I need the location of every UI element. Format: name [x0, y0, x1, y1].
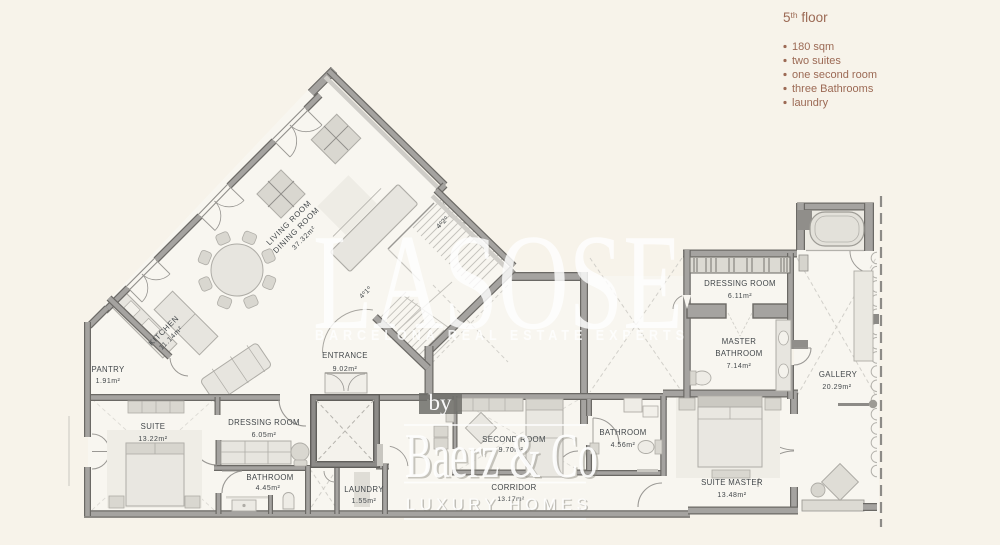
svg-text:LAUNDRY: LAUNDRY: [344, 485, 384, 494]
svg-text:180 sqm: 180 sqm: [792, 41, 834, 53]
svg-text:SUITE: SUITE: [141, 422, 166, 431]
svg-text:1.55m²: 1.55m²: [352, 498, 377, 505]
svg-text:two suites: two suites: [792, 55, 841, 67]
svg-text:laundry: laundry: [792, 97, 829, 109]
svg-text:three Bathrooms: three Bathrooms: [792, 83, 874, 95]
svg-text:MASTER: MASTER: [722, 337, 757, 346]
svg-text:13.48m²: 13.48m²: [717, 492, 746, 499]
svg-text:Baerz & Co: Baerz & Co: [405, 421, 598, 491]
svg-text:4.56m²: 4.56m²: [611, 442, 636, 449]
svg-text:6.11m²: 6.11m²: [728, 293, 752, 300]
svg-text:one second room: one second room: [792, 69, 877, 81]
svg-text:BATHROOM: BATHROOM: [246, 473, 293, 482]
svg-text:by: by: [429, 390, 453, 415]
svg-text:6.05m²: 6.05m²: [252, 432, 277, 439]
svg-text:SUITE MASTER: SUITE MASTER: [701, 478, 763, 487]
svg-text:7.14m²: 7.14m²: [727, 363, 752, 370]
svg-text:GALLERY: GALLERY: [819, 370, 858, 379]
svg-text:BATHROOM: BATHROOM: [715, 349, 762, 358]
svg-text:4.45m²: 4.45m²: [256, 485, 281, 492]
svg-text:BARCELONA REAL ESTATE EXPERTS: BARCELONA REAL ESTATE EXPERTS: [315, 327, 689, 344]
svg-text:PANTRY: PANTRY: [91, 365, 124, 374]
svg-text:20.29m²: 20.29m²: [822, 384, 851, 391]
svg-text:9.02m²: 9.02m²: [333, 366, 358, 373]
svg-text:LUXURY HOMES: LUXURY HOMES: [406, 495, 592, 514]
svg-text:DRESSING ROOM: DRESSING ROOM: [704, 279, 776, 288]
svg-text:13.22m²: 13.22m²: [138, 436, 167, 443]
svg-text:DRESSING ROOM: DRESSING ROOM: [228, 418, 300, 427]
svg-text:5th floor: 5th floor: [783, 10, 828, 25]
svg-text:1.91m²: 1.91m²: [96, 378, 121, 385]
svg-text:BATHROOM: BATHROOM: [599, 428, 646, 437]
